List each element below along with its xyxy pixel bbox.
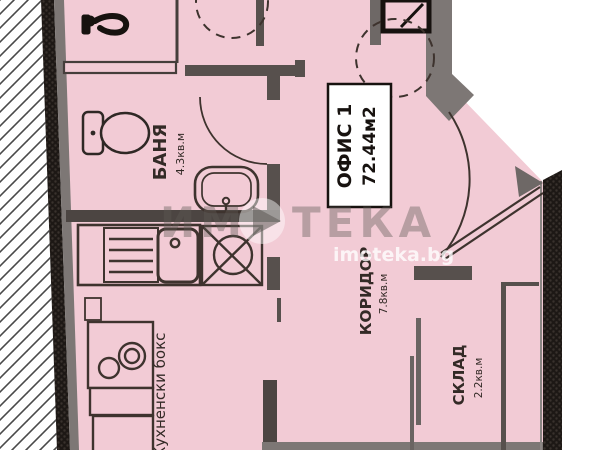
- bathroom-area: 4.3кв.м: [174, 133, 187, 175]
- imoteka-play-logo: [239, 198, 285, 244]
- toilet-icon: [83, 112, 149, 154]
- storage-name: СКЛАД: [450, 345, 468, 406]
- corridor-area: 7.8кв.м: [378, 274, 390, 315]
- floor-plan-svg: ОФИС 1 72.44м2 БАНЯ 4.3кв.м КОРИДОР 7.8к…: [0, 0, 600, 450]
- storage-area: 2.2кв.м: [473, 358, 485, 399]
- bathroom-name: БАНЯ: [150, 124, 171, 181]
- office-area: 72.44м2: [360, 106, 380, 186]
- kitchenette-name: Кухненски бокс: [151, 333, 169, 450]
- right-structural-wall: [543, 170, 562, 450]
- bottom-wall: [262, 442, 543, 450]
- floor-plan-canvas: ОФИС 1 72.44м2 БАНЯ 4.3кв.м КОРИДОР 7.8к…: [0, 0, 600, 450]
- office-name: ОФИС 1: [334, 104, 356, 189]
- drainboard-icon: [104, 228, 158, 282]
- watermark-brand-right: ТЕКА: [292, 198, 436, 247]
- watermark-brand-left: ИМ: [160, 198, 247, 247]
- window-icon: [383, 0, 429, 31]
- watermark-site: imoteka.bg: [333, 244, 454, 266]
- office-label-box: ОФИС 1 72.44м2: [328, 84, 391, 207]
